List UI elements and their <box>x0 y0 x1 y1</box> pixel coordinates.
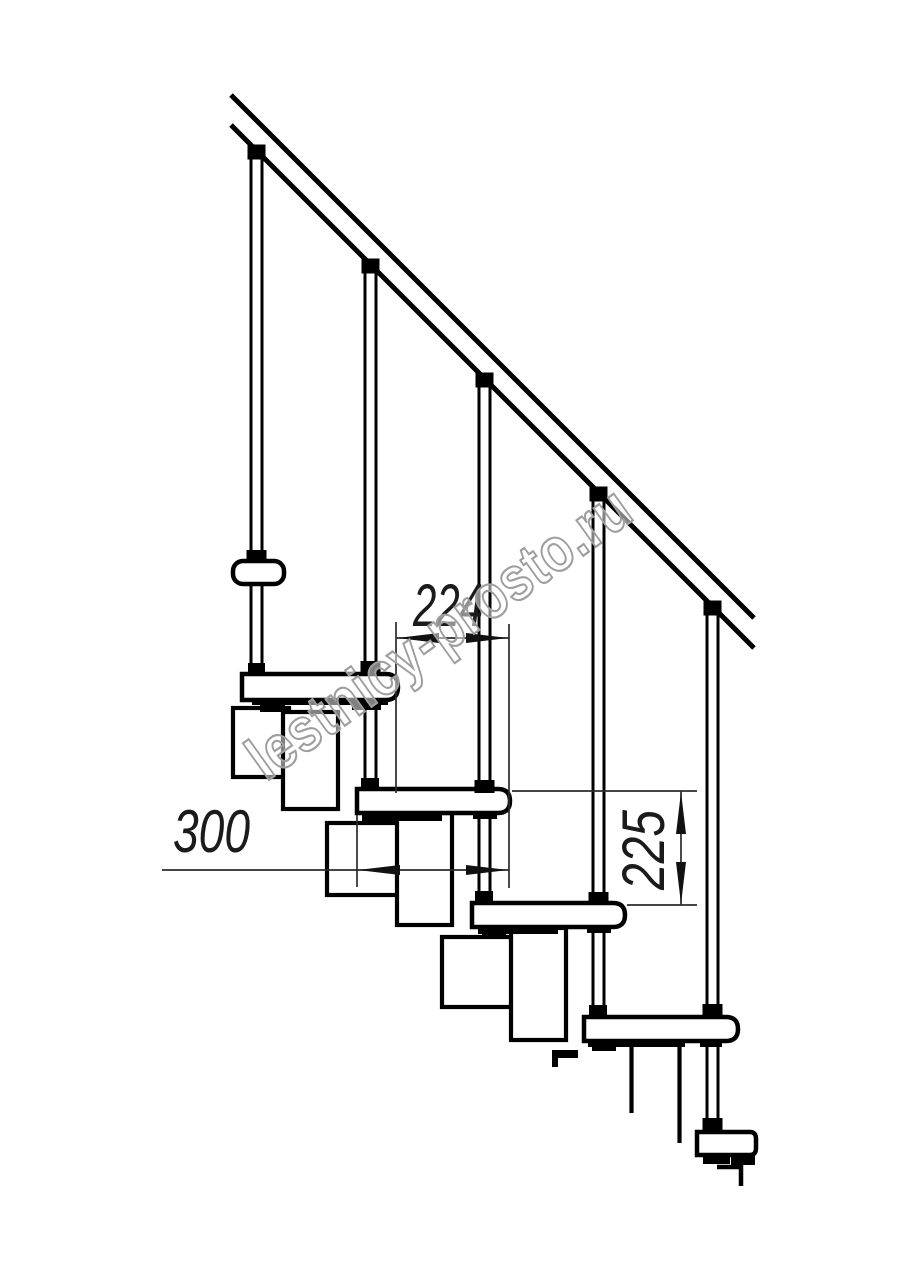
module-box <box>327 823 404 895</box>
module-box <box>511 928 566 1040</box>
foot <box>473 811 497 819</box>
floor-edge-contour <box>717 1167 741 1186</box>
staircase-drawing-page: 224 300 225 lestnicy-prosto.ru <box>0 0 914 1280</box>
collar <box>703 1118 723 1132</box>
module-box <box>442 937 518 1007</box>
collar <box>589 892 609 905</box>
collar <box>361 778 379 790</box>
arrowhead <box>676 862 686 904</box>
foot <box>587 925 611 933</box>
foot <box>592 1040 616 1051</box>
collar <box>247 550 267 562</box>
watermark-text: lestnicy-prosto.ru <box>234 473 644 793</box>
foot <box>703 1153 730 1164</box>
upper-tread-stub <box>233 561 284 584</box>
module-flange <box>552 1050 578 1067</box>
baluster-5 <box>703 601 723 1133</box>
tread-4 <box>584 1017 738 1041</box>
collar <box>703 1004 723 1017</box>
arrowhead <box>676 792 686 834</box>
baluster-1 <box>247 145 267 675</box>
module-box <box>397 813 452 925</box>
arrowhead <box>466 865 508 875</box>
staircase-technical-drawing: 224 300 225 lestnicy-prosto.ru <box>0 0 914 1280</box>
collar <box>589 1005 607 1017</box>
handrail-top-edge <box>231 95 754 618</box>
dimension-label-riser-height: 225 <box>610 809 677 890</box>
dimension-label-tread-depth: 300 <box>173 798 250 865</box>
bottom-platform <box>697 1132 756 1155</box>
collar <box>248 663 265 674</box>
foot <box>482 926 506 937</box>
foot <box>731 1155 755 1165</box>
collar <box>475 891 493 903</box>
foot <box>366 812 390 824</box>
collar <box>475 780 495 793</box>
tread-3 <box>472 903 625 927</box>
